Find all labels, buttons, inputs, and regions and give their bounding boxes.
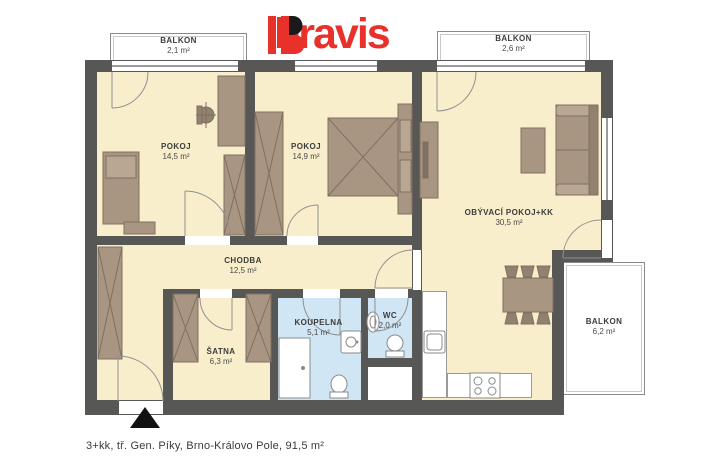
- door-room1: [185, 191, 230, 236]
- office-chair: [196, 102, 216, 128]
- tv-cabinet: [420, 122, 438, 198]
- door-entrance: [118, 356, 163, 401]
- room-area: 12,5 m²: [183, 266, 303, 276]
- room-label-balkon-top-right: BALKON 2,6 m²: [437, 34, 590, 54]
- door-living-balcony-top: [437, 72, 476, 111]
- room-area: 5,1 m²: [276, 328, 361, 338]
- room-area: 6,3 m²: [171, 357, 271, 367]
- room-label-satna: ŠATNA 6,3 m²: [171, 347, 271, 367]
- room-name: BALKON: [437, 34, 590, 44]
- room-name: BALKON: [110, 36, 247, 46]
- room-label-pokoj-1: POKOJ 14,5 m²: [116, 142, 236, 162]
- door-room2: [287, 205, 318, 236]
- stove: [470, 373, 500, 398]
- room-name: CHODBA: [183, 256, 303, 266]
- room-label-balkon-right: BALKON 6,2 m²: [563, 317, 645, 337]
- room-name: POKOJ: [116, 142, 236, 152]
- sofa: [556, 105, 598, 195]
- room-name: KOUPELNA: [276, 318, 361, 328]
- kitchen-sink: [424, 331, 445, 353]
- shower-unit: [279, 338, 310, 398]
- room-name: ŠATNA: [171, 347, 271, 357]
- room-name: POKOJ: [246, 142, 366, 152]
- bathroom-toilet: [330, 375, 348, 398]
- bed-single: [103, 152, 155, 234]
- door-room1-balcony: [112, 72, 148, 108]
- wc-toilet: [386, 335, 404, 357]
- wardrobe-room2: [255, 112, 283, 235]
- room-area: 2,1 m²: [110, 46, 247, 56]
- wardrobe-hall: [98, 247, 122, 359]
- room-area: 2,6 m²: [437, 44, 590, 54]
- room-label-obyvaci: OBÝVACÍ POKOJ+KK 30,5 m²: [429, 208, 589, 228]
- coffee-table: [521, 128, 545, 173]
- room-name: BALKON: [563, 317, 645, 327]
- room-label-balkon-top-left: BALKON 2,1 m²: [110, 36, 247, 56]
- furniture-layer: [0, 0, 706, 468]
- room-name: WC: [367, 311, 413, 321]
- room-label-chodba: CHODBA 12,5 m²: [183, 256, 303, 276]
- room-area: 14,9 m²: [246, 152, 366, 162]
- room-area: 6,2 m²: [563, 327, 645, 337]
- room-area: 30,5 m²: [429, 218, 589, 228]
- floor-plan-page: { "logo": { "brand": "bravis" }, "captio…: [0, 0, 706, 468]
- room-label-pokoj-2: POKOJ 14,9 m²: [246, 142, 366, 162]
- room-area: 14,5 m²: [116, 152, 236, 162]
- room-name: OBÝVACÍ POKOJ+KK: [429, 208, 589, 218]
- wardrobe-room1: [224, 155, 245, 235]
- door-closet: [200, 298, 232, 330]
- room-area: 2,0 m²: [367, 321, 413, 331]
- dining-table: [503, 278, 553, 312]
- room-label-koupelna: KOUPELNA 5,1 m²: [276, 318, 361, 338]
- entrance-arrow: [130, 407, 160, 428]
- door-hall-living: [375, 250, 413, 288]
- desk: [218, 76, 245, 146]
- room-label-wc: WC 2,0 m²: [367, 311, 413, 331]
